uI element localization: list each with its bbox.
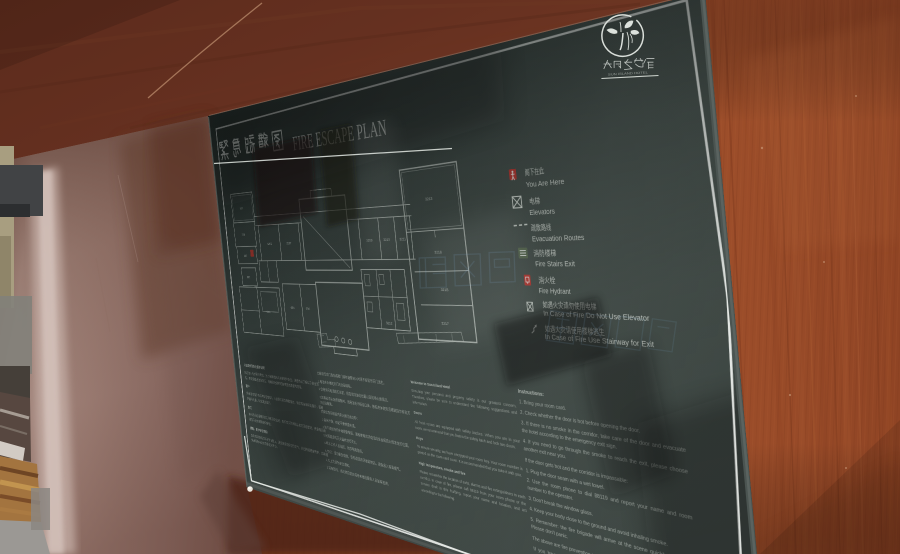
- svg-text:3218: 3218: [434, 248, 443, 255]
- svg-text:3210: 3210: [383, 236, 391, 243]
- svg-text:00A: 00A: [266, 309, 271, 315]
- svg-text:3209: 3209: [366, 237, 373, 244]
- svg-text:00A: 00A: [306, 305, 311, 311]
- svg-text:Evacuation Routes: Evacuation Routes: [532, 232, 585, 244]
- svg-text:3211: 3211: [399, 235, 407, 242]
- svg-text:Fire Hydrant: Fire Hydrant: [538, 285, 572, 296]
- svg-text:321B: 321B: [440, 286, 449, 293]
- svg-text:3207: 3207: [286, 240, 292, 246]
- svg-text:Elevators: Elevators: [529, 206, 555, 217]
- svg-text:消防楼梯: 消防楼梯: [533, 248, 557, 258]
- svg-text:3212: 3212: [386, 319, 394, 326]
- svg-text:Fire Stairs Exit: Fire Stairs Exit: [535, 258, 577, 268]
- svg-text:消火栓: 消火栓: [538, 275, 556, 285]
- svg-text:3205: 3205: [267, 241, 273, 247]
